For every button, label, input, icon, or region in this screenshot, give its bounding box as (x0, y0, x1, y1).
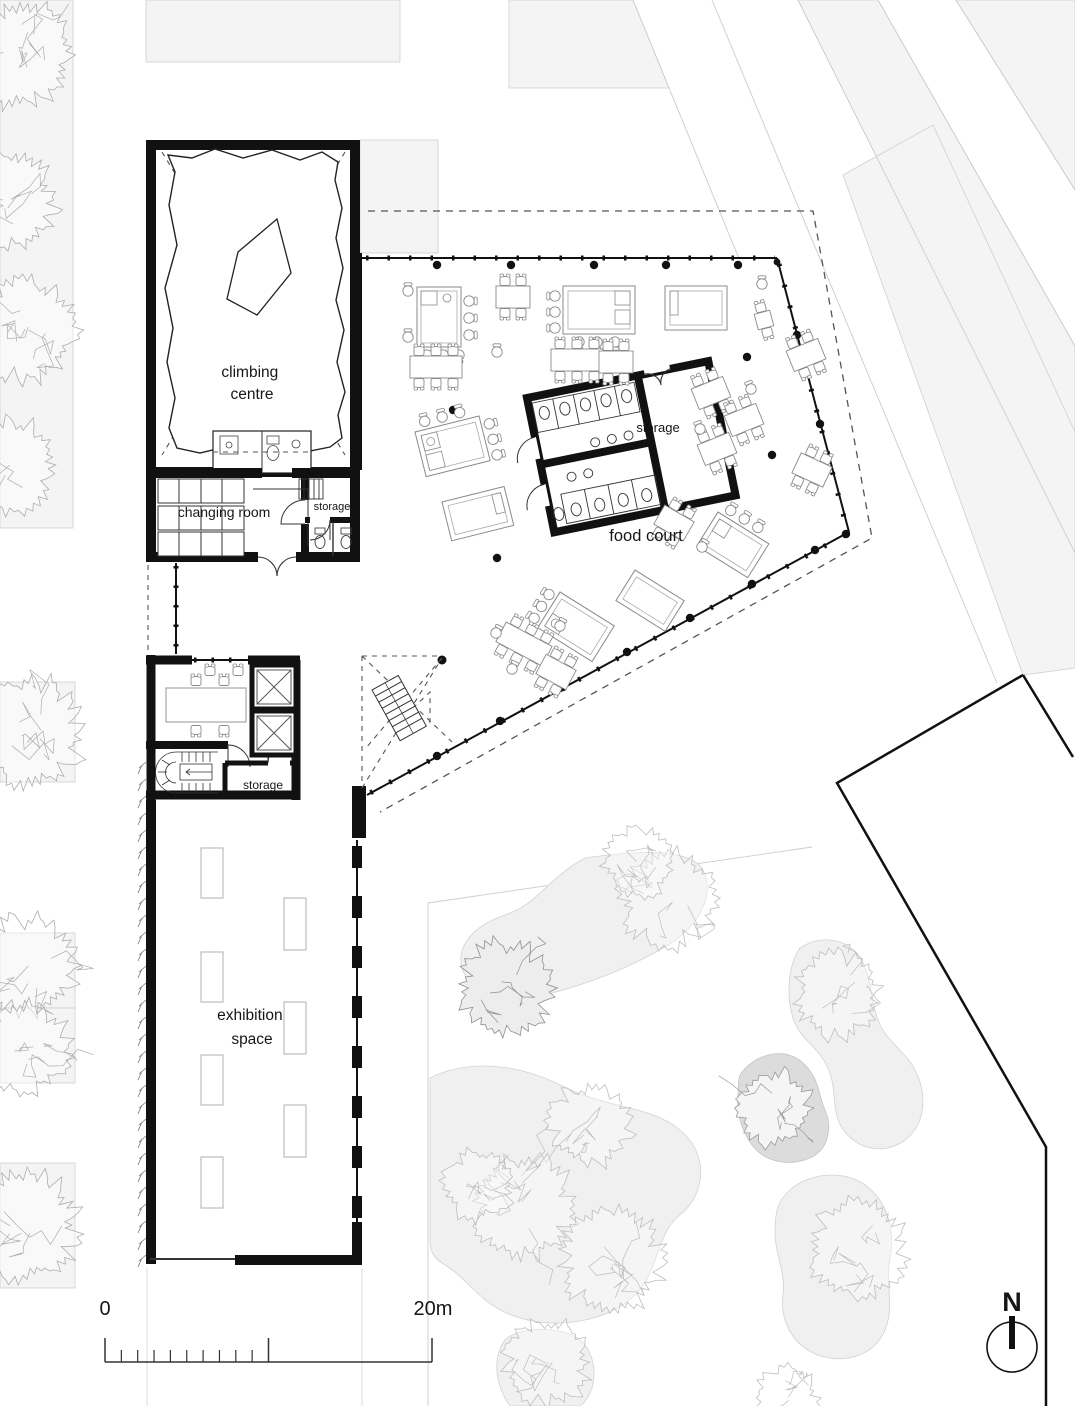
changing-room-label: changing room (178, 504, 271, 520)
exhibition-label-line1: exhibition (217, 1007, 283, 1024)
climbing-centre-label-line1: climbing (221, 364, 278, 381)
climbing-wc (213, 431, 311, 473)
context-parcel (146, 0, 400, 62)
north-label: N (1002, 1287, 1022, 1317)
street-trees (0, 2, 94, 1286)
climbing-centre-label-line2: centre (230, 386, 273, 403)
wall-hatching (138, 762, 146, 1267)
link-corridor (148, 563, 176, 654)
park-layer (428, 825, 923, 1406)
changing-storage-label: storage (314, 501, 351, 513)
climbing-centre-room (151, 145, 355, 473)
site-plan-drawing: climbing centre changing room storage st… (0, 0, 1075, 1406)
food-storage-label: storage (636, 420, 679, 435)
wall-pier (352, 786, 366, 838)
core-storage-label: storage (243, 778, 283, 792)
exhibition-label-line2: space (231, 1031, 272, 1048)
street-trees-layer (0, 0, 94, 1288)
context-parcel (509, 0, 669, 88)
north-arrow: N (987, 1287, 1037, 1372)
scale-end-label: 20m (414, 1298, 453, 1320)
site-plan-page: climbing centre changing room storage st… (0, 0, 1075, 1406)
scale-bar: 0 20m (99, 1298, 452, 1362)
east-wall-piers (352, 846, 362, 1262)
north-arrow-needle (1009, 1316, 1015, 1349)
elevator-shafts (252, 665, 296, 755)
food-court-label: food court (609, 527, 683, 545)
scale-start-label: 0 (99, 1298, 110, 1320)
site-boundary (1023, 675, 1073, 757)
food-counter (665, 286, 727, 330)
context-parcel (360, 140, 438, 253)
